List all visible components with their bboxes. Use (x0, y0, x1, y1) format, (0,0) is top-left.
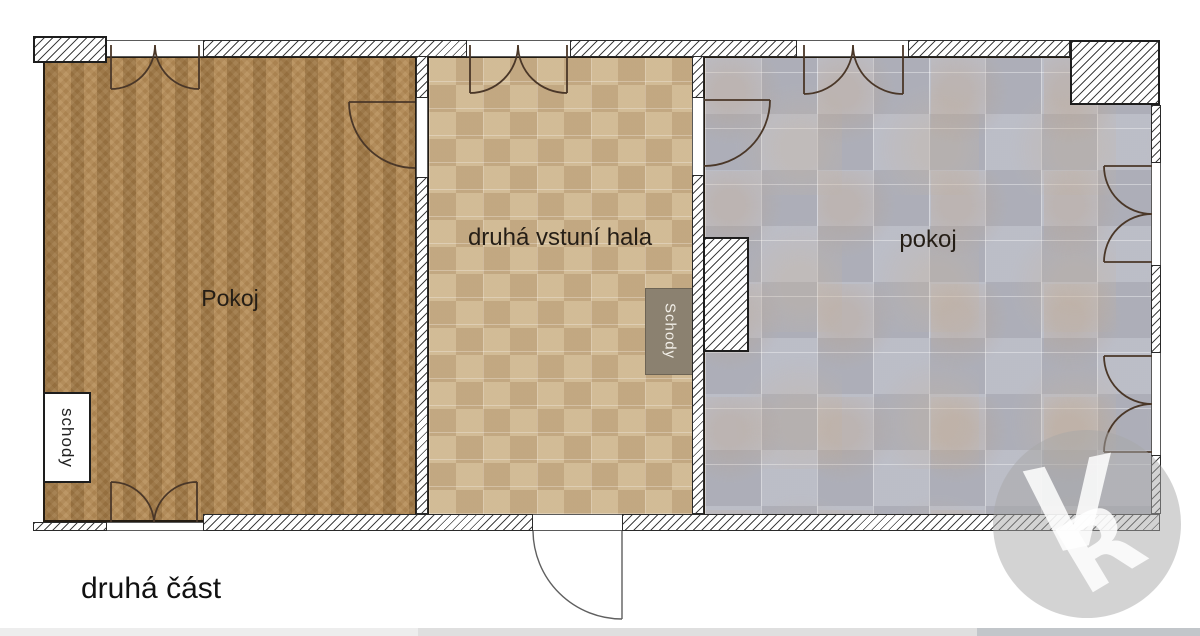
hall-label: druhá vstuní hala (468, 224, 652, 252)
opening-top-right (797, 40, 908, 57)
wall-block-top-left (33, 36, 107, 63)
wall-mid2-upper (692, 56, 704, 98)
plan-caption: druhá část (81, 572, 221, 606)
wall-top-3 (908, 40, 1070, 57)
bottom-strip-right (977, 628, 1200, 636)
opening-bottom-exterior (533, 514, 622, 531)
wall-block-top-right (1070, 40, 1160, 105)
wall-top-1 (203, 40, 467, 57)
wall-top-2 (570, 40, 797, 57)
door-exterior-bottom (533, 531, 622, 619)
wall-right-1 (1151, 105, 1161, 163)
stairs-notch-label: schody (57, 408, 77, 468)
opening-right-lower (1151, 353, 1161, 455)
wall-mid1-lower (416, 177, 428, 514)
wall-pillar (703, 237, 749, 352)
room-left-label: Pokoj (201, 285, 259, 312)
stairs-box: Schody (645, 288, 695, 375)
opening-bottom-left (107, 522, 203, 531)
opening-top-left (107, 40, 203, 57)
room-right-label: pokoj (899, 226, 956, 254)
bottom-strip-left (0, 628, 418, 636)
hall-floor (427, 56, 695, 516)
bottom-strip-mid (418, 628, 977, 636)
wall-bottom-1 (203, 514, 533, 531)
opening-right-upper (1151, 163, 1161, 265)
stairs-box-label: Schody (662, 303, 679, 359)
wall-right-2 (1151, 265, 1161, 353)
stairs-notch: schody (43, 392, 91, 483)
opening-mid2 (692, 98, 704, 175)
opening-top-hall (467, 40, 570, 57)
opening-mid1 (416, 98, 428, 177)
wall-bottom-thin (33, 522, 107, 531)
wall-mid1-upper (416, 56, 428, 98)
floor-plan: schody Schody (0, 0, 1200, 636)
